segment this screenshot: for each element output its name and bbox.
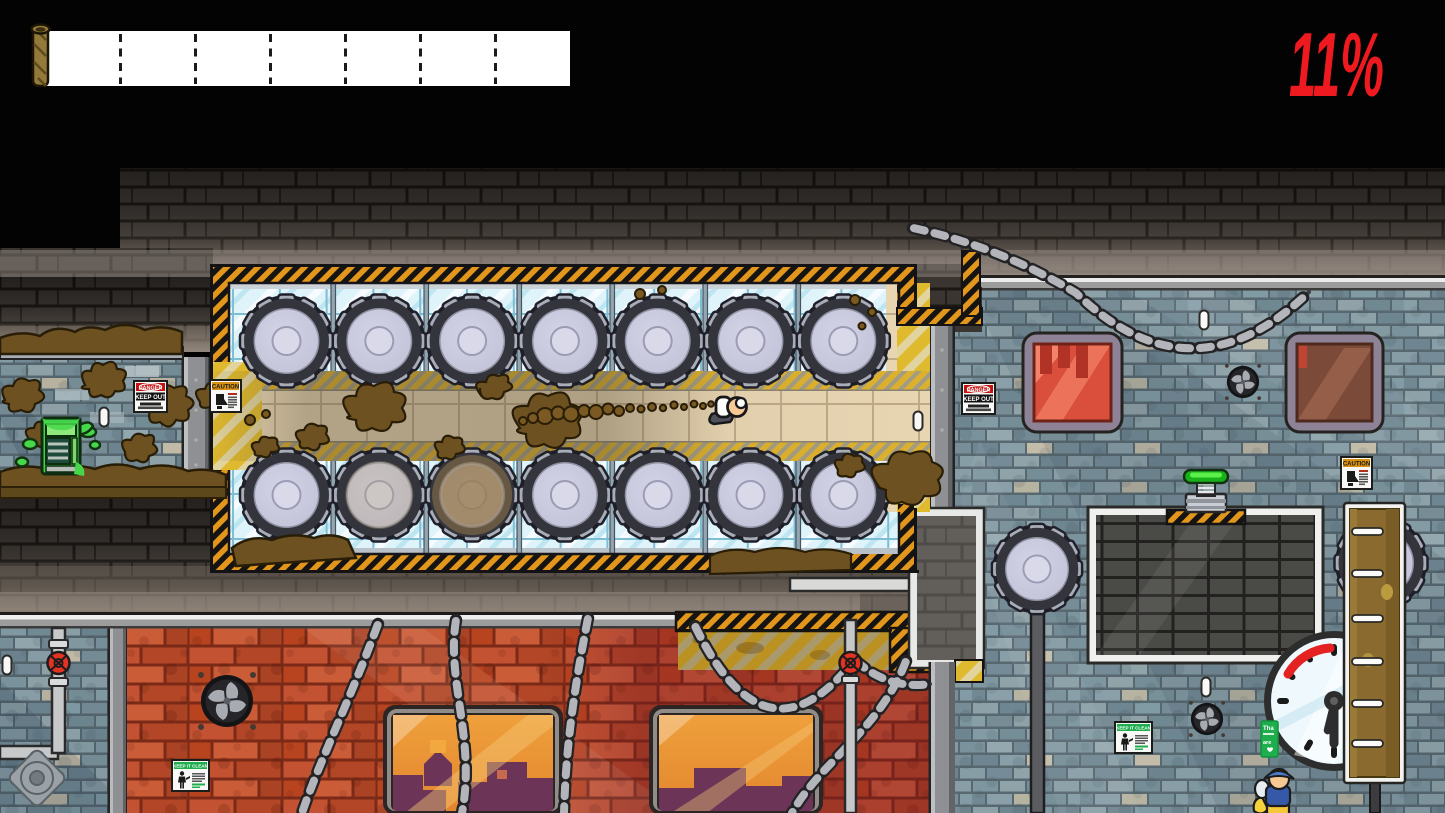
svg-text:Tha: Tha xyxy=(1263,726,1274,732)
svg-text:11%: 11% xyxy=(1289,15,1384,116)
svg-text:are: are xyxy=(1263,740,1271,746)
